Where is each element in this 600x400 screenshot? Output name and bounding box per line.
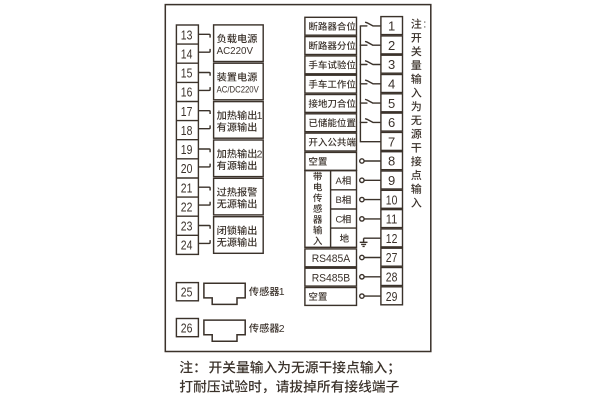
svg-text:18: 18 (181, 123, 193, 138)
svg-text:28: 28 (386, 270, 398, 285)
svg-text:12: 12 (386, 231, 398, 246)
svg-text:4: 4 (388, 77, 395, 92)
svg-text:6: 6 (388, 115, 395, 130)
svg-text:21: 21 (181, 180, 193, 195)
svg-text::: : (423, 18, 426, 30)
svg-text:1: 1 (257, 110, 263, 122)
svg-text:B: B (336, 195, 342, 206)
svg-text:2: 2 (257, 148, 263, 160)
svg-text:27: 27 (386, 250, 398, 265)
svg-text:RS485A: RS485A (312, 253, 351, 265)
svg-text:3: 3 (388, 57, 395, 72)
svg-text:2: 2 (279, 323, 285, 335)
svg-text:A: A (336, 176, 343, 187)
svg-text:7: 7 (388, 134, 395, 149)
svg-text:9: 9 (388, 173, 395, 188)
svg-text:1: 1 (279, 286, 285, 298)
svg-text:5: 5 (388, 96, 395, 111)
svg-text:19: 19 (181, 142, 193, 157)
svg-text:11: 11 (386, 212, 398, 227)
svg-text:14: 14 (181, 46, 193, 61)
svg-text:17: 17 (181, 104, 193, 119)
svg-text:16: 16 (181, 85, 193, 100)
svg-text:13: 13 (181, 27, 193, 42)
svg-text:1: 1 (388, 19, 395, 34)
svg-text:23: 23 (181, 219, 193, 234)
svg-text:2: 2 (388, 38, 395, 53)
svg-text:8: 8 (388, 154, 395, 169)
svg-text:AC220V: AC220V (217, 46, 253, 57)
svg-text:26: 26 (181, 320, 193, 335)
svg-text:C: C (336, 214, 343, 225)
svg-text:10: 10 (386, 192, 398, 207)
svg-text:25: 25 (181, 285, 193, 300)
svg-text:29: 29 (386, 289, 398, 304)
svg-text:20: 20 (181, 161, 193, 176)
svg-text:24: 24 (181, 238, 193, 253)
svg-text:15: 15 (181, 66, 193, 81)
svg-text:RS485B: RS485B (312, 272, 351, 284)
svg-text:AC/DC220V: AC/DC220V (217, 84, 260, 95)
svg-text:22: 22 (181, 199, 193, 214)
